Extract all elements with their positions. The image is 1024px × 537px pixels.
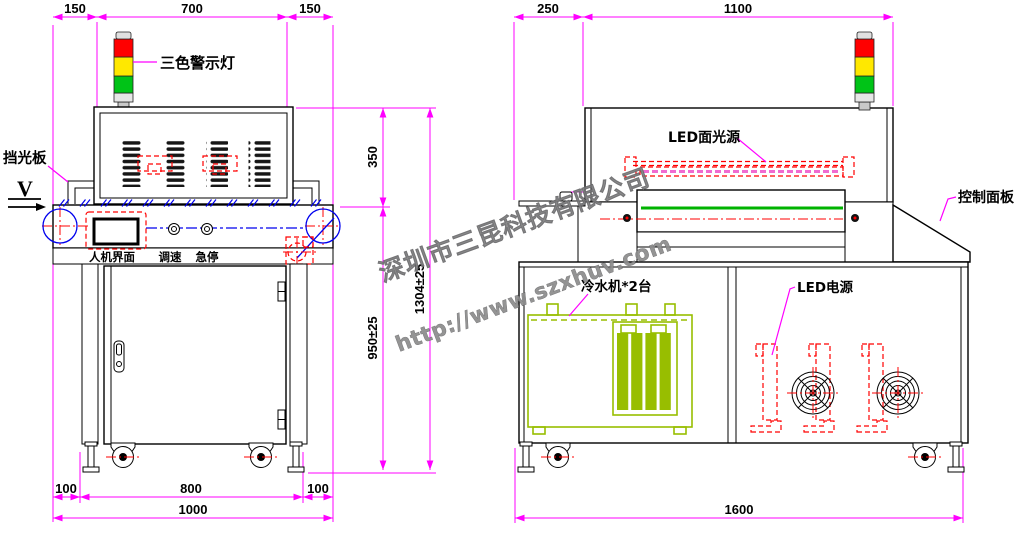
caster	[541, 443, 575, 468]
dim-front-top-right: 150	[299, 1, 321, 16]
caster	[908, 443, 942, 468]
hinge-bottom	[278, 410, 285, 429]
dim-table-height: 950±25	[365, 316, 380, 359]
control-panel-label: 控制面板	[958, 189, 1015, 206]
estop-button	[202, 224, 213, 235]
control-panel-slope	[893, 205, 970, 262]
door-handle	[114, 341, 124, 372]
hmi-label: 人机界面	[89, 250, 135, 264]
view-direction-marker: V	[8, 176, 46, 211]
view-marker-letter: V	[17, 176, 33, 201]
light-shield-leader	[48, 166, 68, 182]
dim-front-total-width: 1000	[179, 502, 208, 517]
chiller-grille	[617, 333, 673, 410]
speed-knob	[169, 224, 180, 235]
caster	[106, 443, 140, 468]
warning-light-tower-side	[855, 32, 874, 110]
cad-drawing-uv-curing-machine: 150 700 150 350 950±25 1304±25 100 800 1…	[0, 0, 1024, 537]
led-power-label: LED电源	[797, 279, 854, 296]
leveling-foot	[518, 442, 534, 472]
dim-body-width: 1100	[724, 1, 752, 16]
side-casters-and-feet	[518, 442, 964, 472]
view-arrow-icon	[36, 203, 46, 211]
dim-front-bottom-left: 100	[55, 481, 77, 496]
warning-light-label: 三色警示灯	[160, 54, 235, 72]
leveling-foot	[948, 442, 964, 472]
front-casters-and-feet	[83, 442, 304, 472]
leveling-foot	[288, 442, 304, 472]
drawing-canvas: 150 700 150 350 950±25 1304±25 100 800 1…	[0, 0, 1024, 537]
dim-total-length: 1600	[725, 502, 754, 517]
dim-front-bottom-width: 800	[180, 481, 202, 496]
dim-hood-height: 350	[365, 146, 380, 168]
led-source-label: LED面光源	[668, 129, 740, 146]
caster	[244, 443, 278, 468]
speed-label: 调速	[159, 250, 182, 264]
control-panel-leader	[940, 197, 956, 221]
hinge-top	[278, 282, 285, 301]
front-view: 150 700 150 350 950±25 1304±25 100 800 1…	[3, 1, 436, 522]
estop-label: 急停	[196, 250, 219, 264]
dim-inlet: 250	[537, 1, 559, 16]
light-shield-label: 挡光板	[3, 149, 47, 167]
dim-front-bottom-right: 100	[307, 481, 329, 496]
belt-ticks	[56, 199, 330, 207]
dim-front-top-left: 150	[64, 1, 86, 16]
leveling-foot	[83, 442, 99, 472]
warning-light-tower	[114, 32, 133, 110]
touchscreen	[86, 212, 146, 249]
conveyor	[42, 199, 341, 264]
dim-front-top-width: 700	[181, 1, 203, 16]
cabinet	[82, 264, 307, 444]
